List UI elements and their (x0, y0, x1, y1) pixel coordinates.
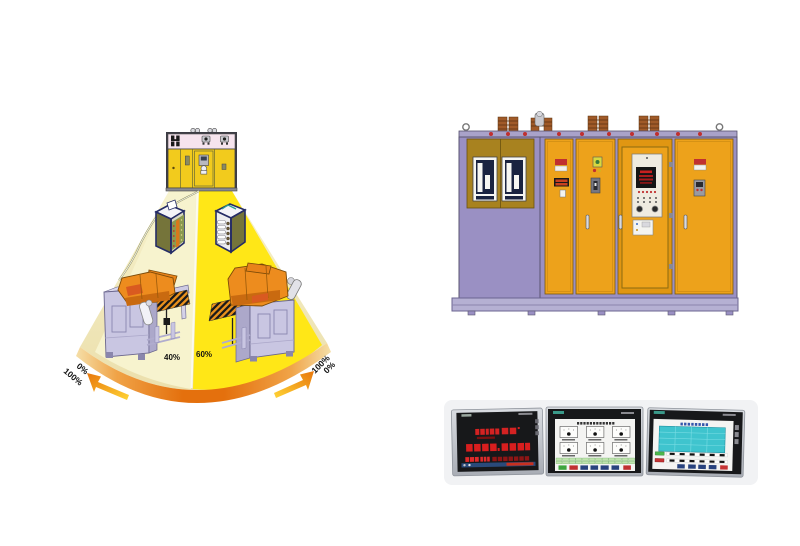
svg-text:60%: 60% (196, 350, 212, 359)
svg-text:40%: 40% (164, 353, 180, 362)
